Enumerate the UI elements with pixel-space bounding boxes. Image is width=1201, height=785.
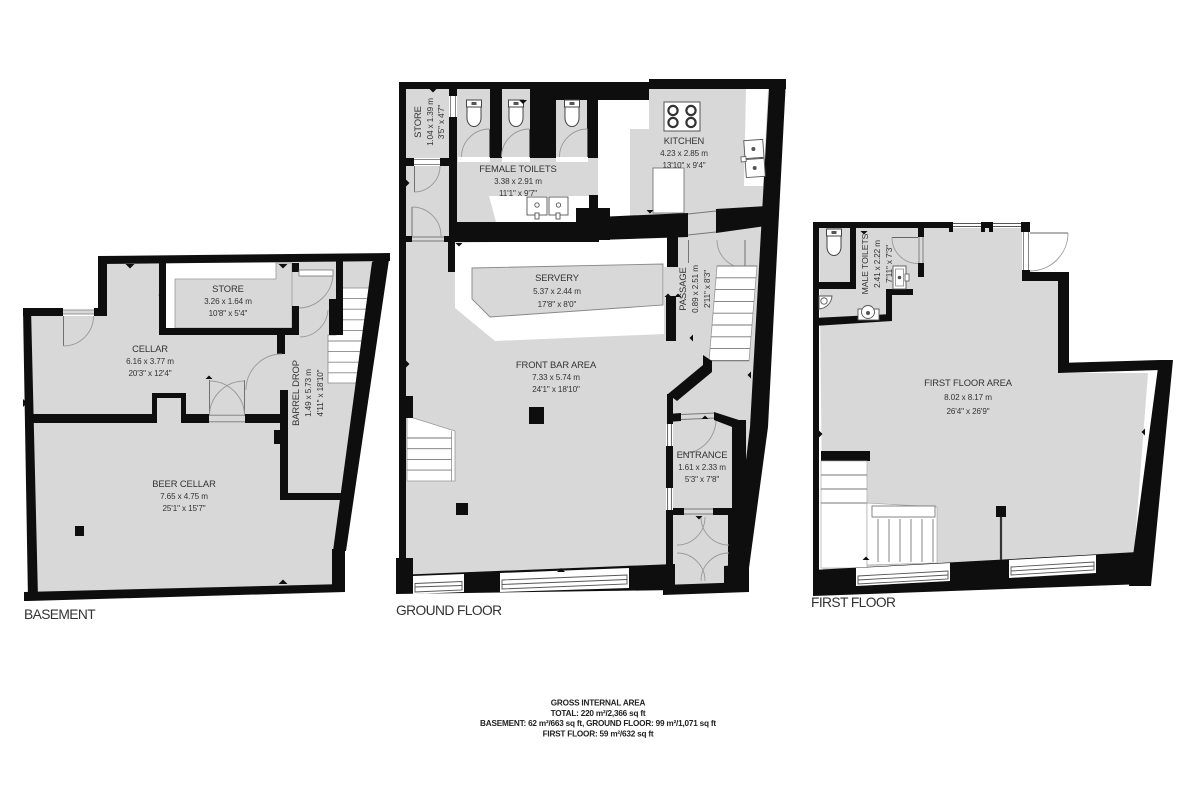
svg-text:STORE: STORE [412,106,423,138]
svg-text:FRONT BAR AREA: FRONT BAR AREA [516,359,597,370]
svg-text:5.37 x 2.44 m: 5.37 x 2.44 m [533,287,581,296]
svg-text:FEMALE TOILETS: FEMALE TOILETS [479,163,556,174]
svg-text:BEER CELLAR: BEER CELLAR [152,478,216,489]
svg-text:1.61 x 2.33 m: 1.61 x 2.33 m [678,463,726,472]
svg-text:GROUND FLOOR: GROUND FLOOR [396,603,502,618]
svg-text:24'1" x 18'10": 24'1" x 18'10" [532,385,580,394]
svg-text:BARREL DROP: BARREL DROP [290,360,301,426]
svg-text:BASEMENT: 62 m²/663 sq ft, GRO: BASEMENT: 62 m²/663 sq ft, GROUND FLOOR:… [480,719,716,728]
svg-text:6.16 x 3.77 m: 6.16 x 3.77 m [126,357,174,366]
svg-text:STORE: STORE [212,283,244,294]
svg-text:3'5" x 4'7": 3'5" x 4'7" [437,105,446,140]
svg-text:CELLAR: CELLAR [132,343,168,354]
svg-text:FIRST FLOOR: FIRST FLOOR [811,595,896,610]
svg-text:8.02 x 8.17 m: 8.02 x 8.17 m [944,393,992,402]
svg-text:0.89 x 2.51 m: 0.89 x 2.51 m [691,265,700,313]
svg-text:5'3" x 7'8": 5'3" x 7'8" [685,475,720,484]
svg-text:20'3" x 12'4": 20'3" x 12'4" [128,369,171,378]
svg-text:4.23 x 2.85 m: 4.23 x 2.85 m [660,149,708,158]
svg-text:2'11" x 8'3": 2'11" x 8'3" [703,270,712,308]
svg-text:26'4" x 26'9": 26'4" x 26'9" [946,407,989,416]
svg-text:BASEMENT: BASEMENT [24,607,96,622]
svg-text:FIRST FLOOR: 59 m²/632 sq ft: FIRST FLOOR: 59 m²/632 sq ft [543,730,654,739]
svg-text:KITCHEN: KITCHEN [664,135,704,146]
svg-text:TOTAL: 220 m²/2,366 sq ft: TOTAL: 220 m²/2,366 sq ft [551,709,646,718]
svg-text:11'1" x 9'7": 11'1" x 9'7" [499,189,537,198]
svg-text:7'11" x 7'3": 7'11" x 7'3" [885,245,894,283]
svg-text:MALE TOILETS: MALE TOILETS [860,233,870,294]
svg-text:7.33 x 5.74 m: 7.33 x 5.74 m [532,373,580,382]
svg-text:10'8" x 5'4": 10'8" x 5'4" [209,309,248,318]
svg-text:25'1" x 15'7": 25'1" x 15'7" [162,504,205,513]
svg-text:3.26 x 1.64 m: 3.26 x 1.64 m [204,297,252,306]
svg-text:7.65 x 4.75 m: 7.65 x 4.75 m [160,492,208,501]
svg-text:2.41 x 2.22 m: 2.41 x 2.22 m [873,240,882,288]
svg-text:13'10" x 9'4": 13'10" x 9'4" [662,161,705,170]
svg-text:3.38 x 2.91 m: 3.38 x 2.91 m [494,177,542,186]
svg-text:1.49 x 5.73 m: 1.49 x 5.73 m [304,369,313,417]
svg-text:17'8" x 8'0": 17'8" x 8'0" [538,300,577,309]
svg-text:GROSS INTERNAL AREA: GROSS INTERNAL AREA [551,699,646,708]
svg-text:PASSAGE: PASSAGE [677,267,688,310]
svg-text:SERVERY: SERVERY [535,272,580,283]
svg-text:FIRST FLOOR AREA: FIRST FLOOR AREA [924,377,1013,388]
svg-text:ENTRANCE: ENTRANCE [677,449,728,460]
svg-text:1.04 x 1.39 m: 1.04 x 1.39 m [426,98,435,146]
svg-text:4'11" x 18'10": 4'11" x 18'10" [316,369,325,416]
